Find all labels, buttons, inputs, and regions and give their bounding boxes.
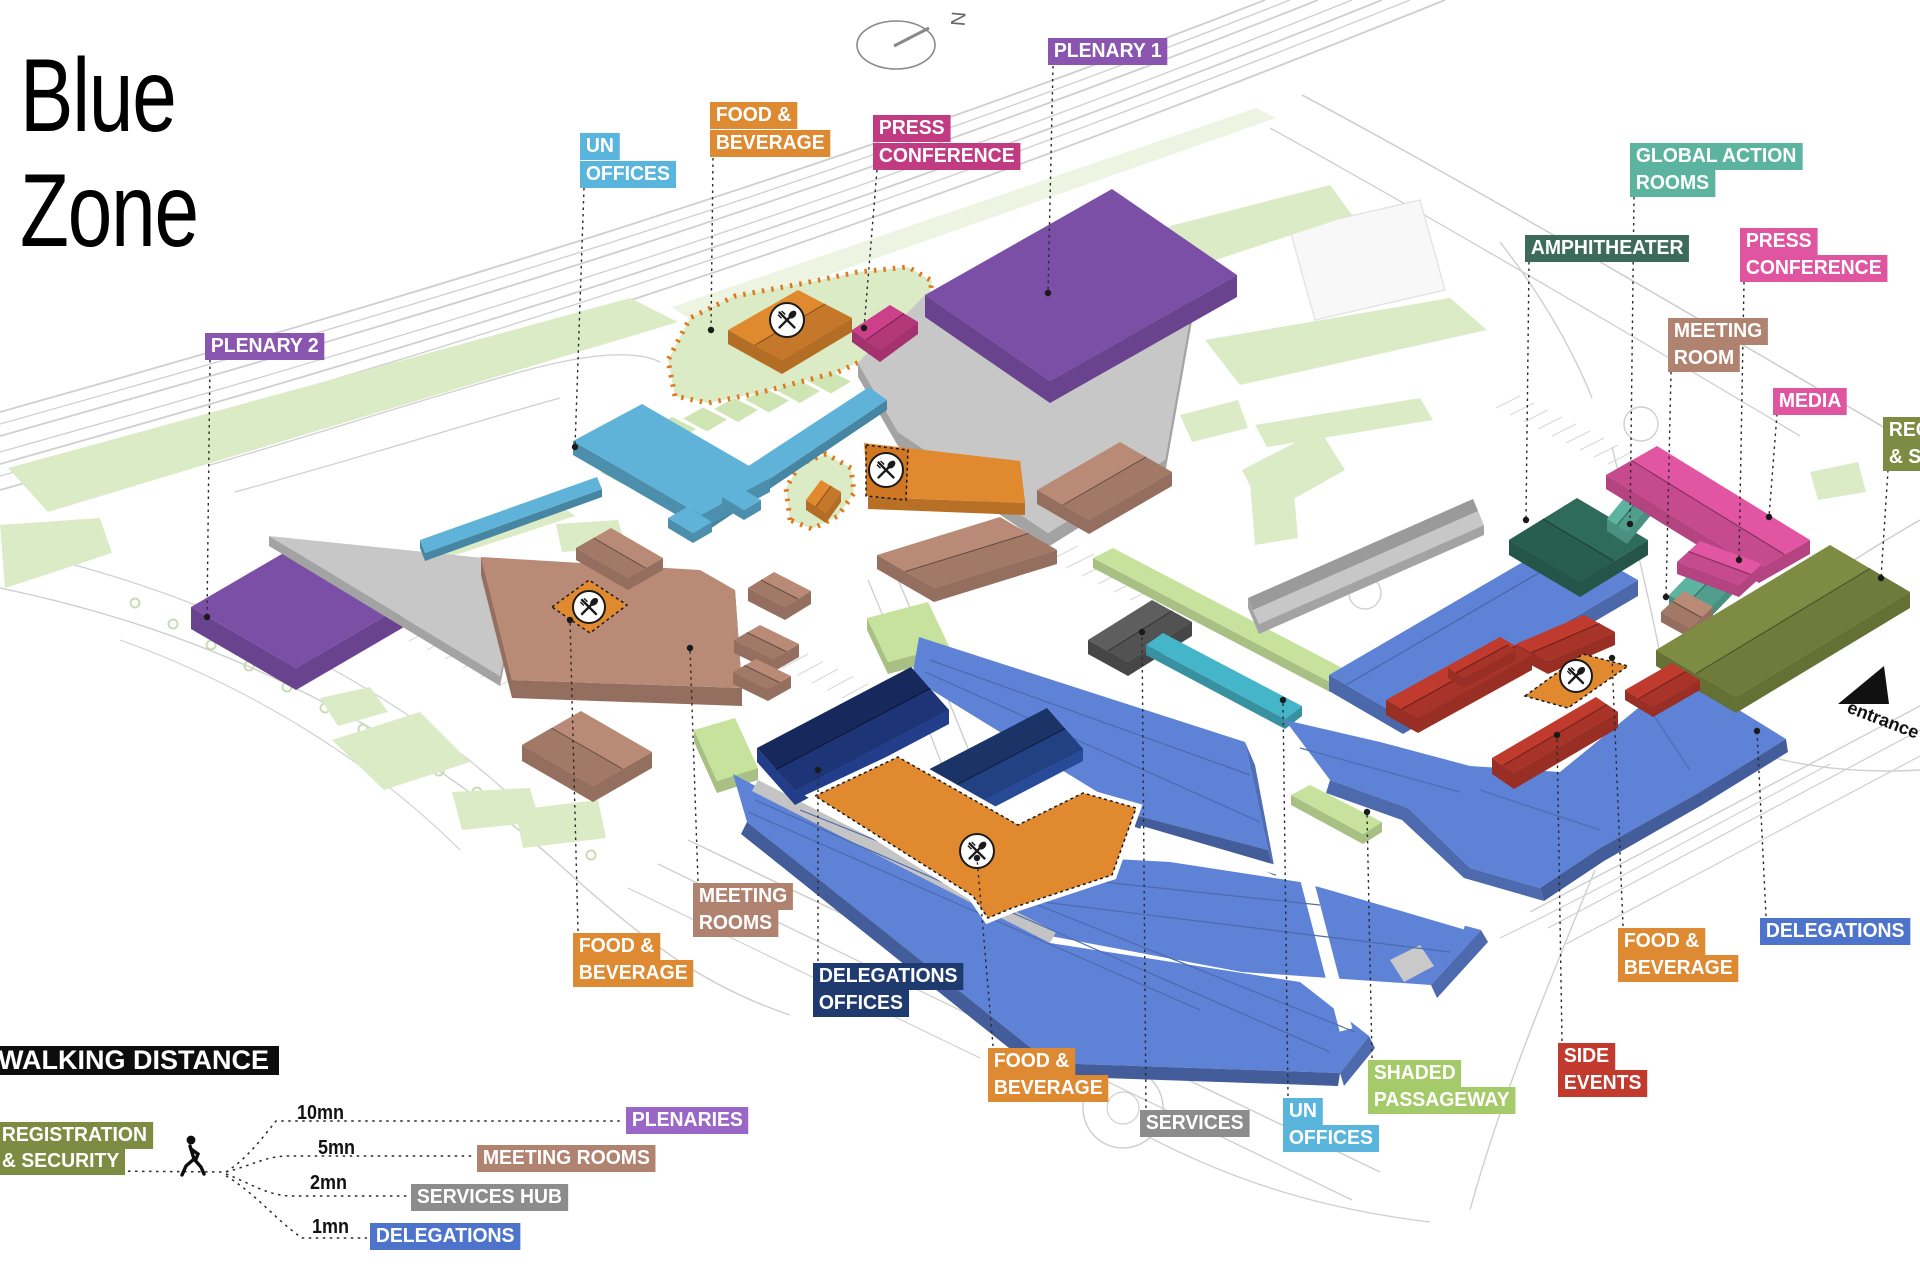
svg-text:N: N xyxy=(946,11,969,27)
